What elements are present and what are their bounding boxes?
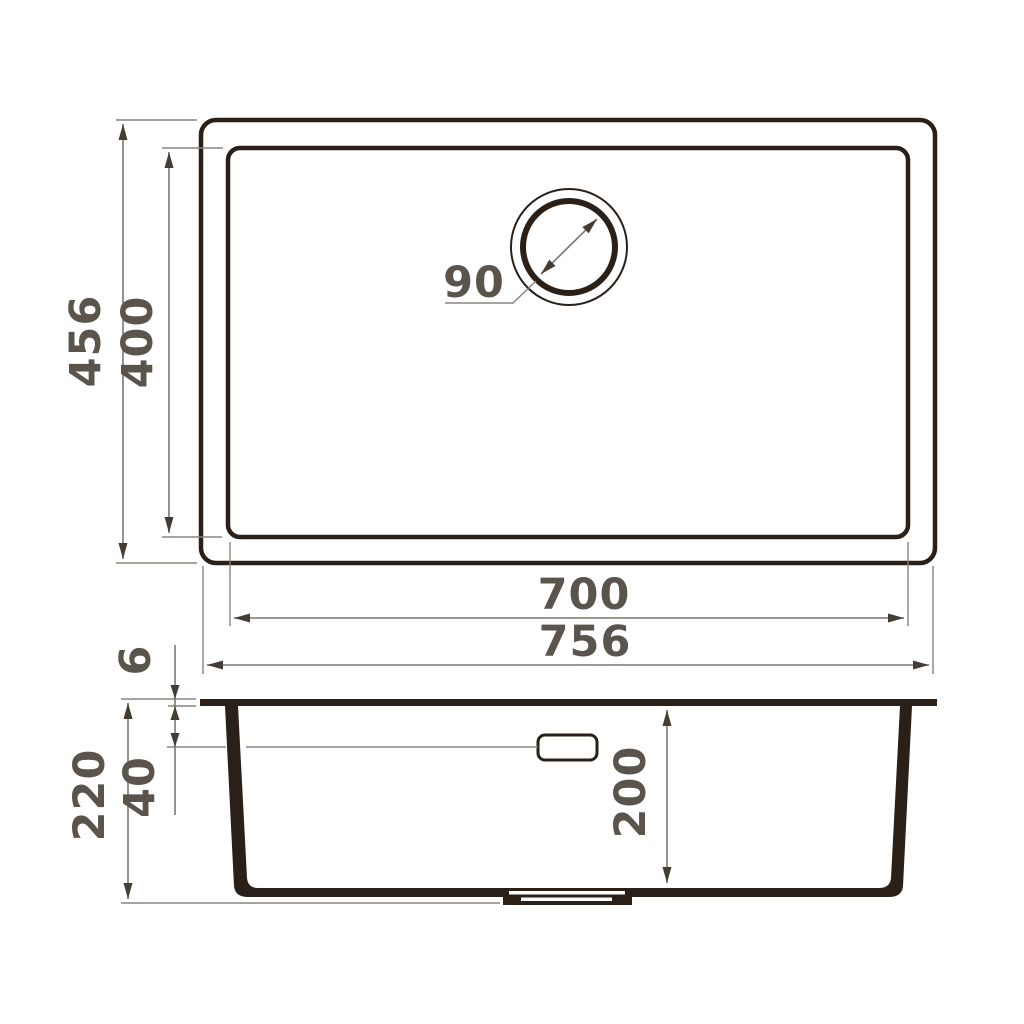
sink-outer-outline <box>201 120 935 563</box>
dim-label-outer-height: 456 <box>61 295 111 388</box>
drain-boss-groove-bottom <box>521 898 612 902</box>
arrow-rim-bottom <box>171 706 180 720</box>
technical-drawing-canvas: 90 456 400 700 756 <box>0 0 1024 1024</box>
top-view: 90 456 400 700 756 <box>61 120 935 674</box>
sink-dimension-diagram: 90 456 400 700 756 <box>0 0 1024 1024</box>
dim-label-bowl-height: 400 <box>113 296 163 389</box>
rim-flange <box>200 699 937 706</box>
dim-label-overall-depth: 220 <box>65 749 115 842</box>
arrow-overflow-level <box>171 733 180 747</box>
overflow-opening <box>538 735 597 760</box>
drain-boss-groove-top <box>509 891 625 895</box>
arrow-rim-top <box>171 685 180 699</box>
bowl-outline <box>228 148 908 537</box>
dim-label-overflow-offset: 40 <box>115 756 165 818</box>
side-view: 220 6 40 200 <box>65 645 937 905</box>
dim-label-bowl-depth: 200 <box>606 746 656 839</box>
drain-diameter-arrow <box>541 219 597 274</box>
dim-label-drain-diameter: 90 <box>443 258 505 308</box>
dim-label-bowl-width: 700 <box>538 570 631 620</box>
dim-label-rim-thickness: 6 <box>111 645 161 676</box>
bowl-cavity <box>238 706 900 888</box>
dim-label-outer-width: 756 <box>539 617 632 667</box>
